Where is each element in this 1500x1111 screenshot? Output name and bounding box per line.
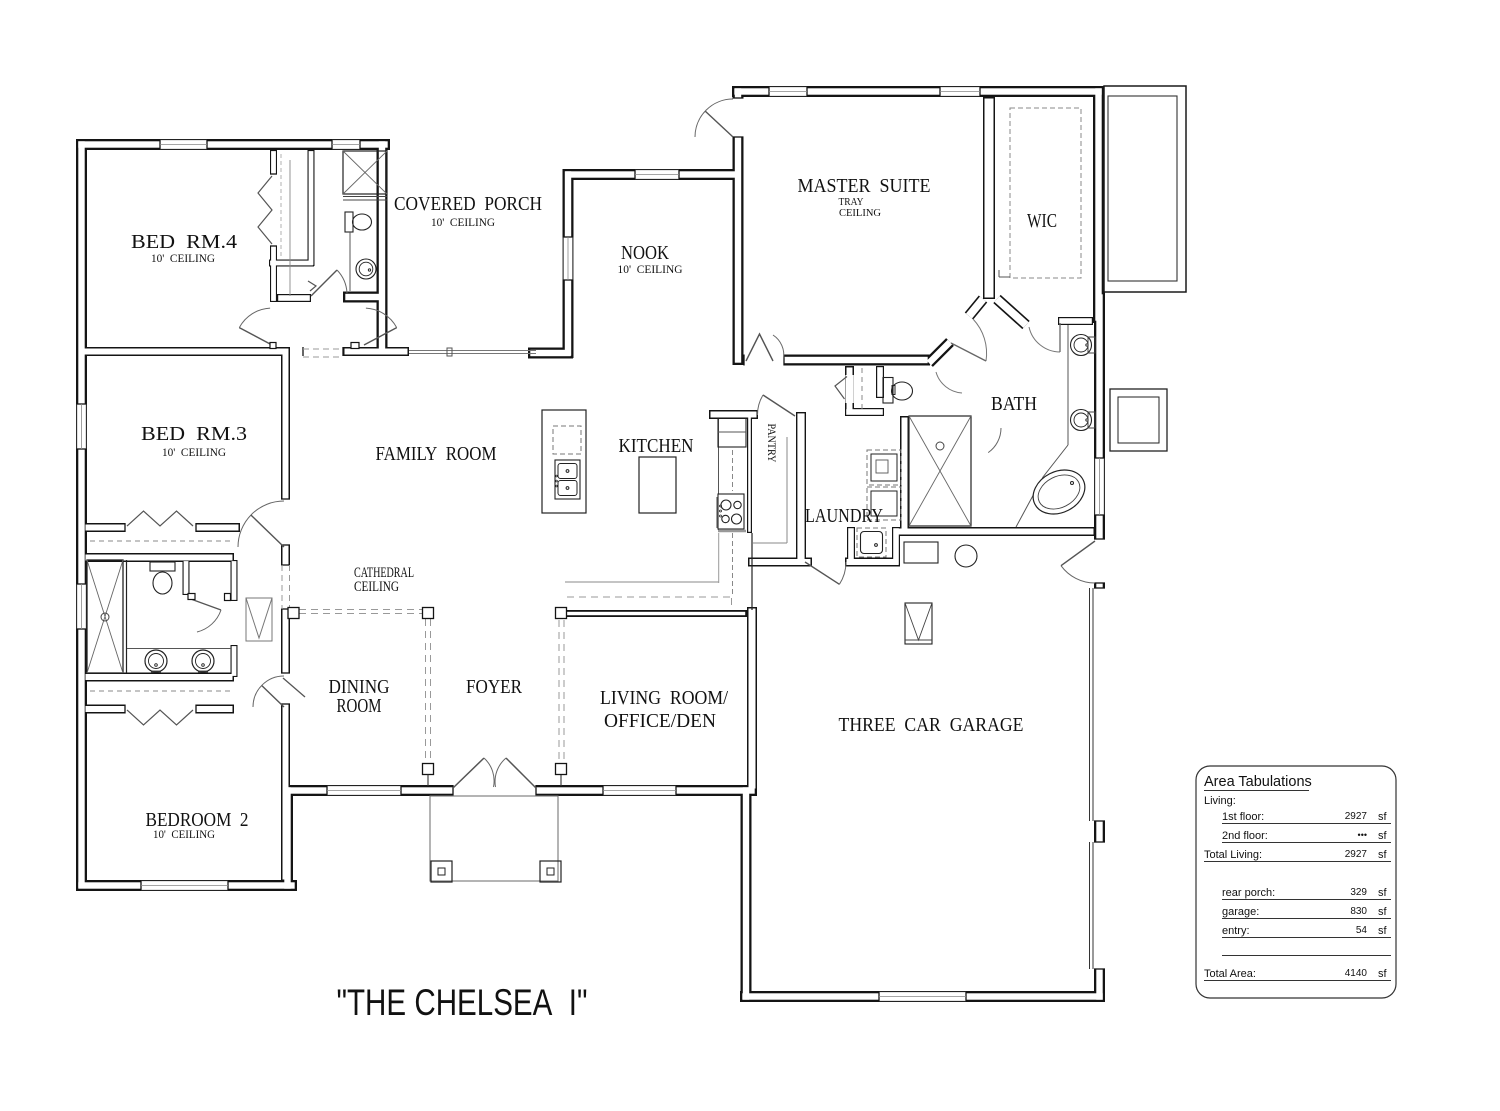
svg-text:Living:: Living: — [1204, 795, 1236, 807]
svg-text:Total Living:: Total Living: — [1204, 849, 1262, 861]
svg-text:LIVING ROOM/: LIVING ROOM/ — [600, 687, 728, 709]
svg-text:OFFICE/DEN: OFFICE/DEN — [604, 710, 716, 732]
svg-text:ROOM: ROOM — [337, 695, 382, 717]
svg-text:Total Area:: Total Area: — [1204, 968, 1256, 980]
svg-text:2927: 2927 — [1345, 811, 1368, 822]
svg-text:sf: sf — [1378, 849, 1388, 861]
svg-text:sf: sf — [1378, 906, 1388, 918]
svg-text:•••: ••• — [1358, 830, 1367, 840]
svg-text:1st floor:: 1st floor: — [1222, 811, 1264, 823]
svg-text:CEILING: CEILING — [354, 579, 399, 595]
svg-text:MASTER SUITE: MASTER SUITE — [798, 175, 931, 197]
svg-text:830: 830 — [1350, 906, 1367, 917]
svg-text:10' CEILING: 10' CEILING — [618, 262, 683, 276]
svg-text:THREE CAR GARAGE: THREE CAR GARAGE — [839, 714, 1024, 736]
svg-text:10' CEILING: 10' CEILING — [431, 215, 495, 229]
svg-text:10' CEILING: 10' CEILING — [162, 445, 226, 459]
svg-text:"THE CHELSEA I": "THE CHELSEA I" — [337, 982, 588, 1023]
svg-text:BED RM.4: BED RM.4 — [131, 231, 237, 253]
svg-text:FAMILY ROOM: FAMILY ROOM — [376, 443, 497, 465]
svg-text:rear porch:: rear porch: — [1222, 887, 1275, 899]
svg-text:54: 54 — [1356, 925, 1368, 936]
svg-text:FOYER: FOYER — [466, 676, 523, 698]
svg-text:sf: sf — [1378, 830, 1388, 842]
svg-text:garage:: garage: — [1222, 906, 1259, 918]
svg-text:10' CEILING: 10' CEILING — [153, 827, 215, 841]
svg-text:WIC: WIC — [1027, 210, 1057, 232]
svg-text:LAUNDRY: LAUNDRY — [805, 505, 883, 527]
svg-text:sf: sf — [1378, 811, 1388, 823]
svg-text:4140: 4140 — [1345, 968, 1368, 979]
svg-text:sf: sf — [1378, 887, 1388, 899]
svg-text:entry:: entry: — [1222, 925, 1250, 937]
svg-text:2927: 2927 — [1345, 849, 1368, 860]
svg-text:10' CEILING: 10' CEILING — [151, 251, 215, 265]
svg-text:Area Tabulations: Area Tabulations — [1204, 774, 1312, 790]
svg-text:COVERED PORCH: COVERED PORCH — [394, 193, 542, 215]
svg-text:2nd floor:: 2nd floor: — [1222, 830, 1268, 842]
svg-text:NOOK: NOOK — [621, 242, 669, 264]
svg-text:BATH: BATH — [991, 393, 1037, 415]
svg-text:sf: sf — [1378, 925, 1388, 937]
svg-text:sf: sf — [1378, 968, 1388, 980]
svg-text:BED RM.3: BED RM.3 — [141, 423, 247, 445]
svg-text:329: 329 — [1350, 887, 1367, 898]
svg-text:PANTRY: PANTRY — [765, 424, 779, 463]
svg-text:KITCHEN: KITCHEN — [619, 435, 694, 457]
svg-text:CEILING: CEILING — [839, 207, 881, 219]
